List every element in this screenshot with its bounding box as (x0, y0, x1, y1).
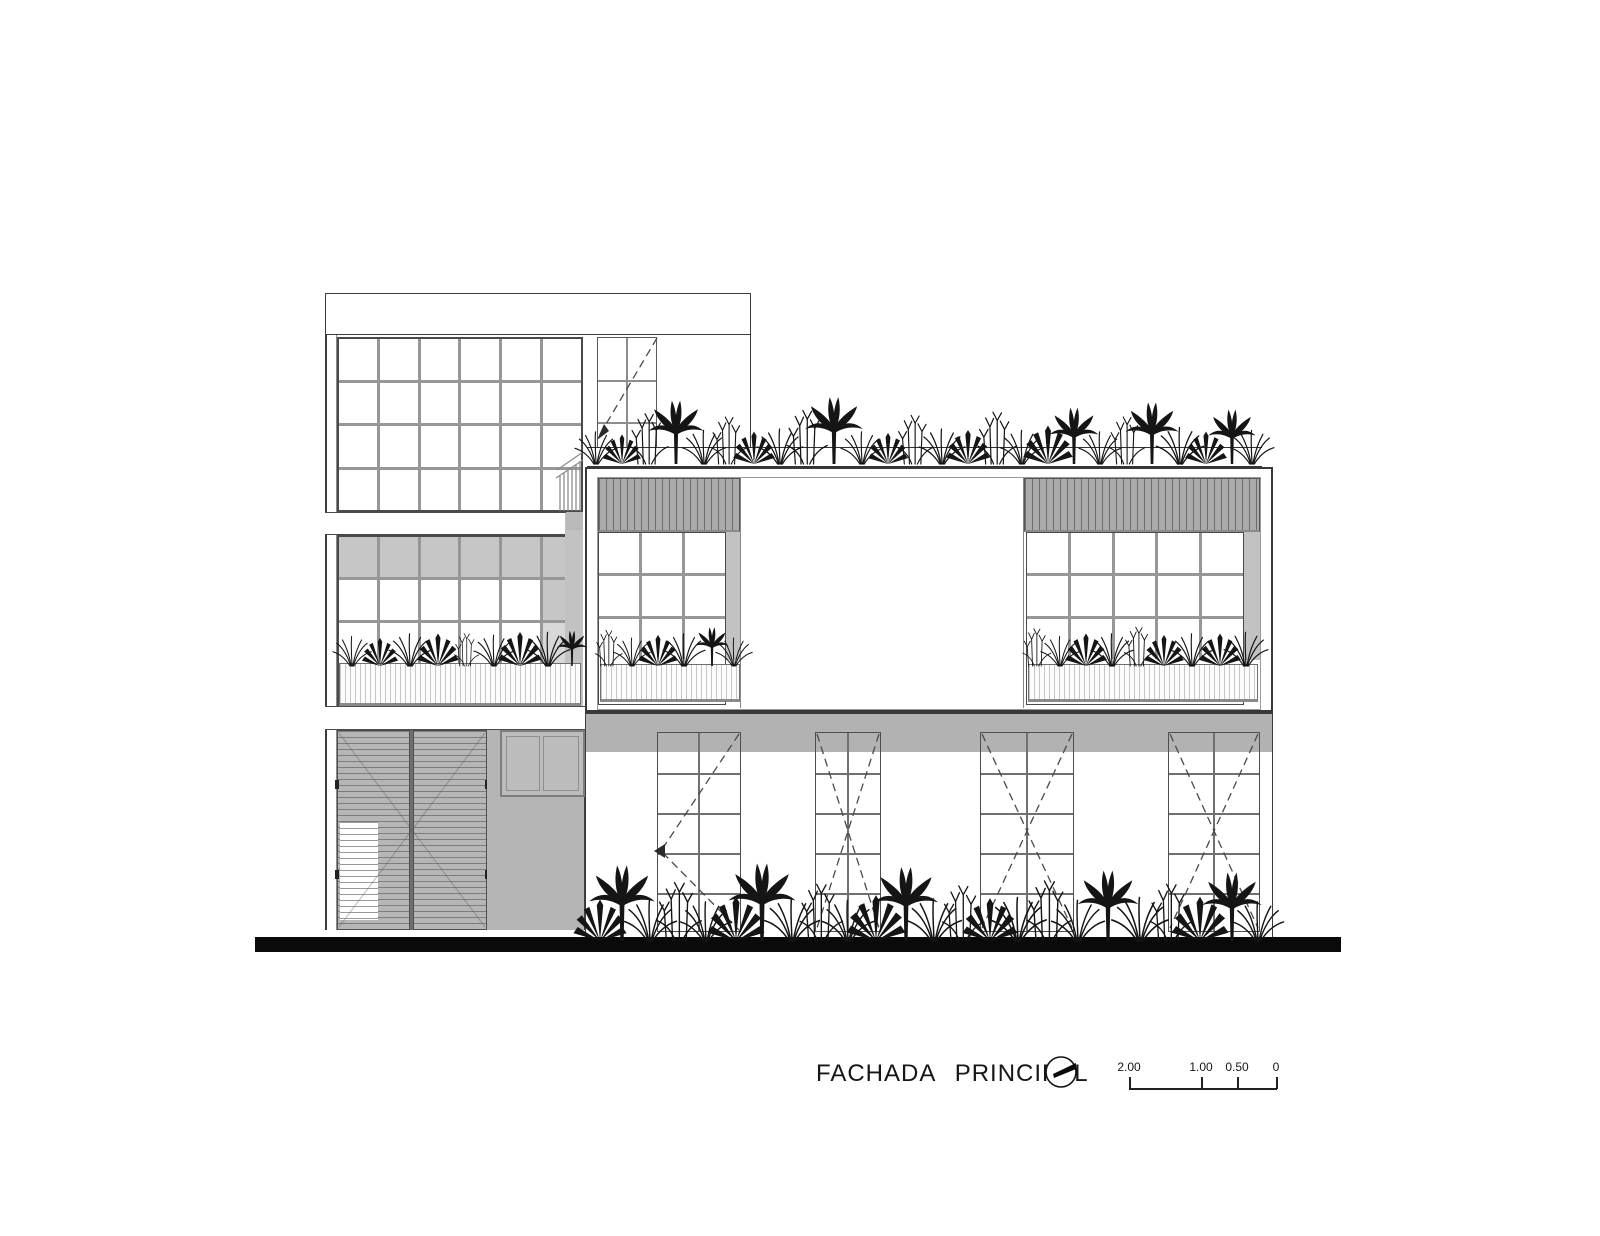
scale-line (1129, 1088, 1277, 1090)
section-marker-icon (1044, 1054, 1080, 1090)
drawing-sheet: { "sheet": { "background": "#ffffff", "i… (0, 0, 1600, 1236)
louver-gate-diagonals (339, 733, 485, 927)
stair-railing (556, 452, 583, 511)
title-block: FACHADA PRINCIPAL 2.00 1.00 0.50 0 (790, 1050, 1350, 1110)
plants (333, 397, 1284, 941)
scale-bar: 2.00 1.00 0.50 0 (1100, 1056, 1300, 1096)
stair-shadow-patch (566, 512, 583, 530)
scale-label-2: 2.00 (1117, 1060, 1140, 1074)
scale-label-0: 0 (1273, 1060, 1280, 1074)
scale-label-05: 0.50 (1225, 1060, 1248, 1074)
scale-label-1: 1.00 (1189, 1060, 1212, 1074)
